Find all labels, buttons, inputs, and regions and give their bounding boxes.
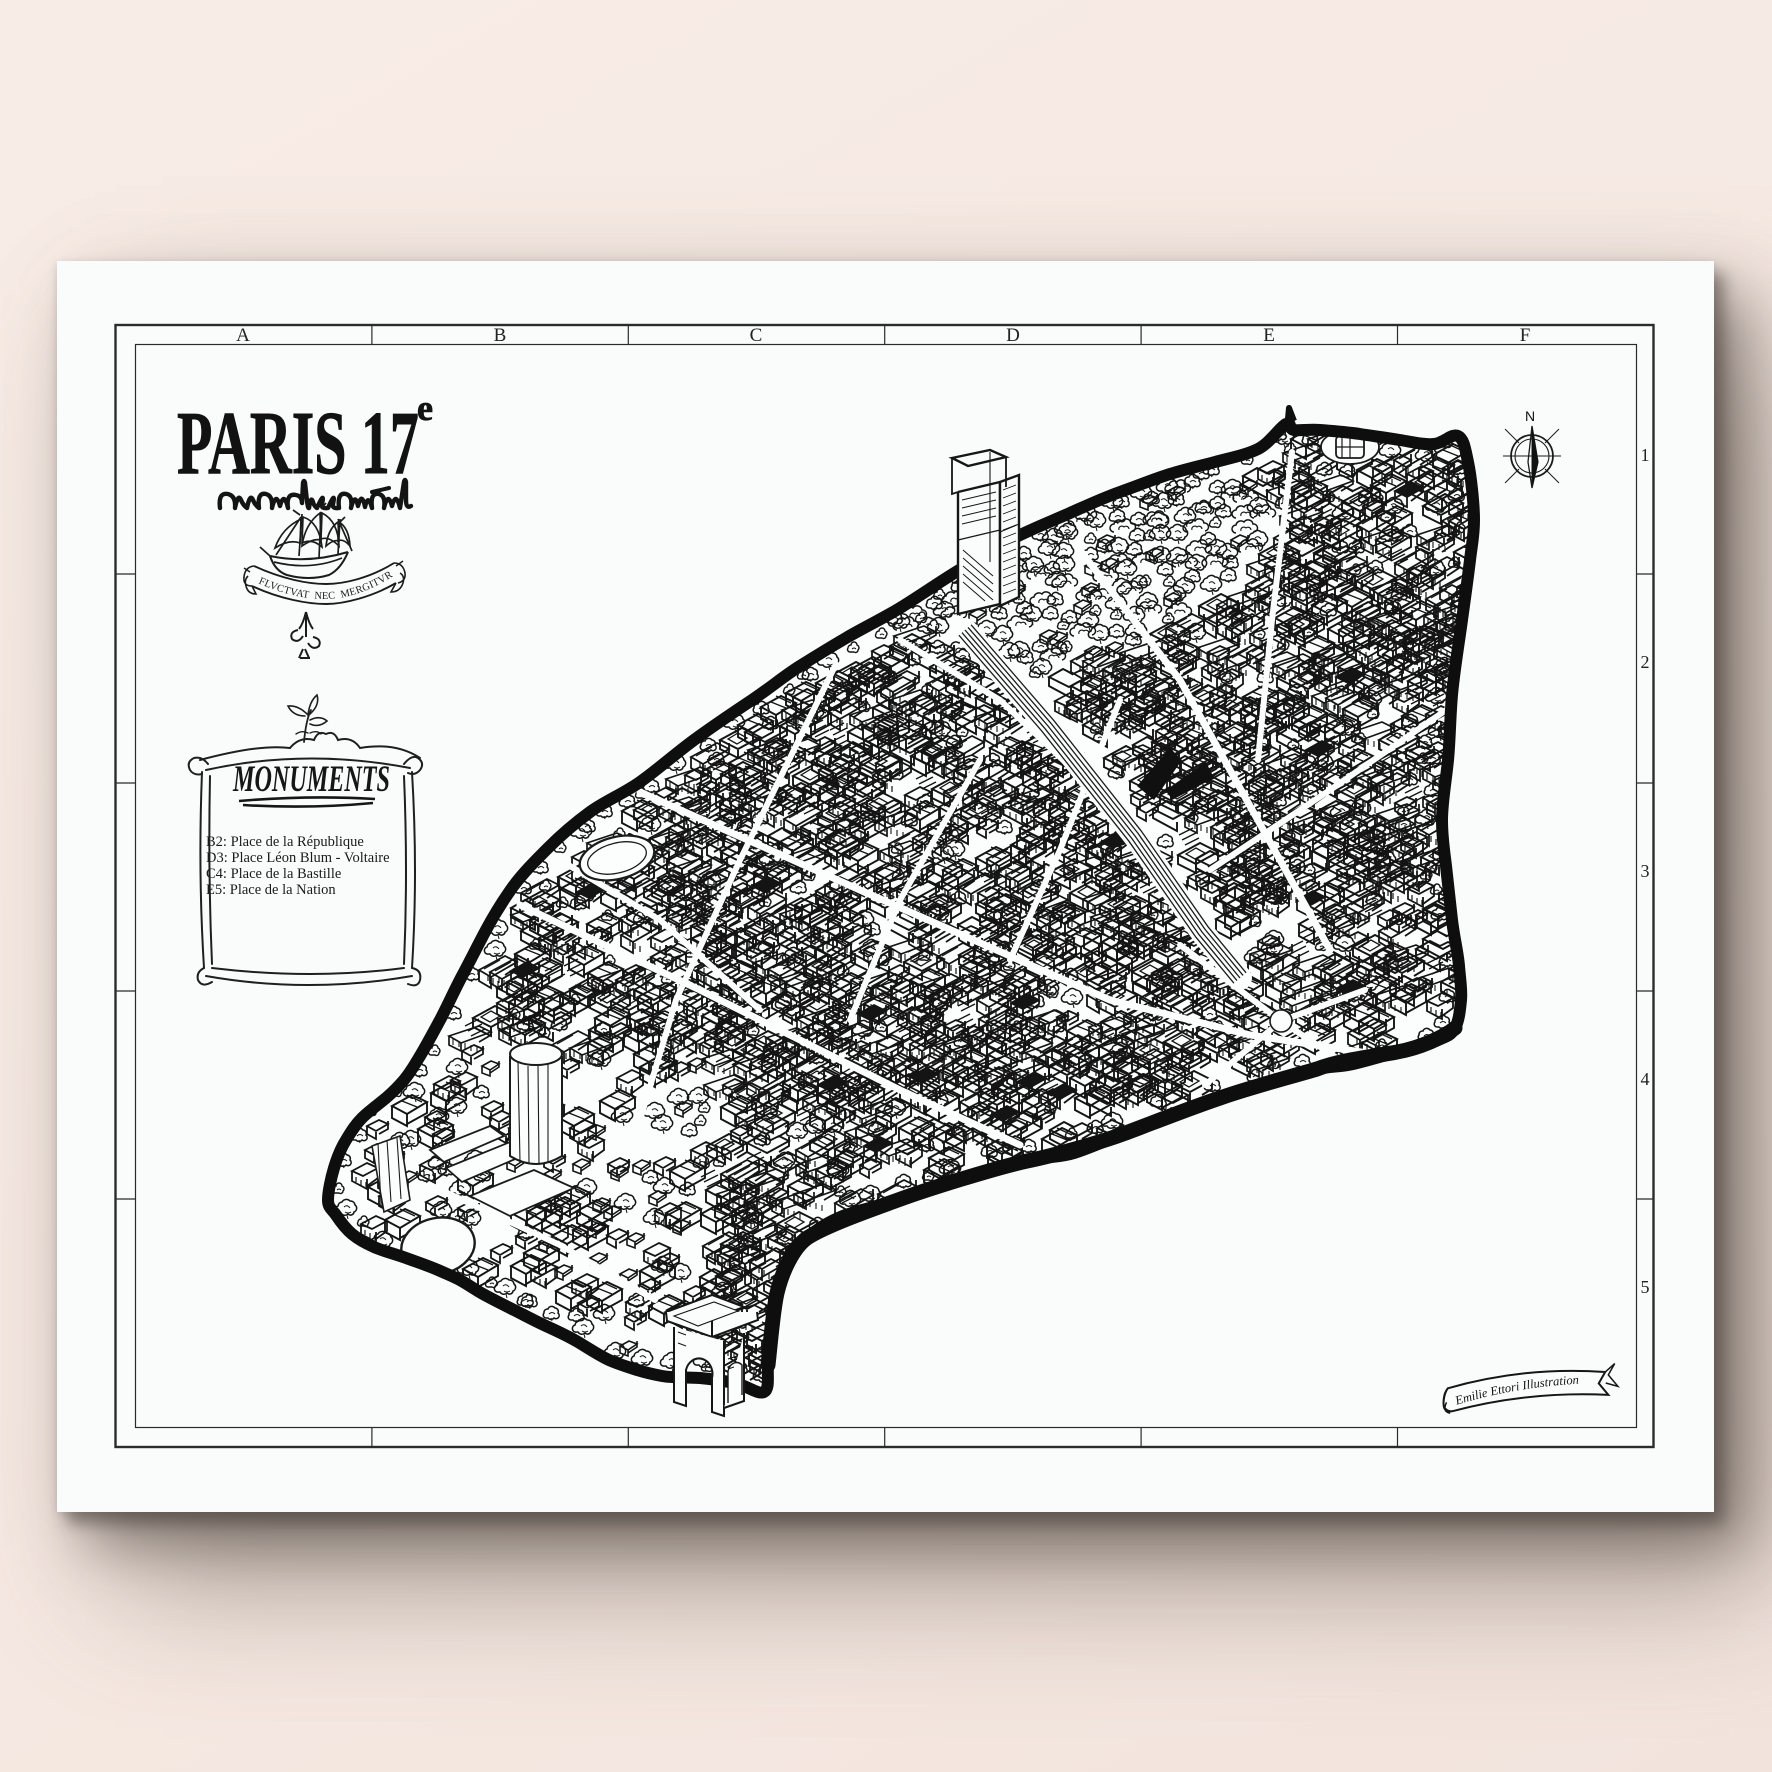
svg-text:N: N <box>1525 408 1535 424</box>
svg-text:B: B <box>494 325 507 346</box>
svg-text:F: F <box>1520 325 1531 346</box>
svg-text:C: C <box>750 325 763 346</box>
svg-text:e: e <box>417 388 433 428</box>
svg-text:A: A <box>236 325 250 346</box>
svg-text:2: 2 <box>1641 652 1650 672</box>
svg-text:E: E <box>1263 325 1275 346</box>
svg-text:D3: Place Léon Blum - Voltaire: D3: Place Léon Blum - Voltaire <box>206 850 390 866</box>
svg-text:1: 1 <box>1641 445 1650 465</box>
svg-text:5: 5 <box>1641 1277 1650 1297</box>
svg-text:4: 4 <box>1641 1069 1650 1089</box>
svg-text:B2: Place de la République: B2: Place de la République <box>206 834 364 850</box>
svg-text:E5: Place de la Nation: E5: Place de la Nation <box>206 882 336 898</box>
svg-text:PARIS 17: PARIS 17 <box>177 394 419 493</box>
svg-text:3: 3 <box>1641 861 1650 881</box>
svg-text:C4: Place de la Bastille: C4: Place de la Bastille <box>206 866 341 882</box>
svg-text:D: D <box>1006 325 1020 346</box>
svg-text:MONUMENTS: MONUMENTS <box>232 758 390 799</box>
